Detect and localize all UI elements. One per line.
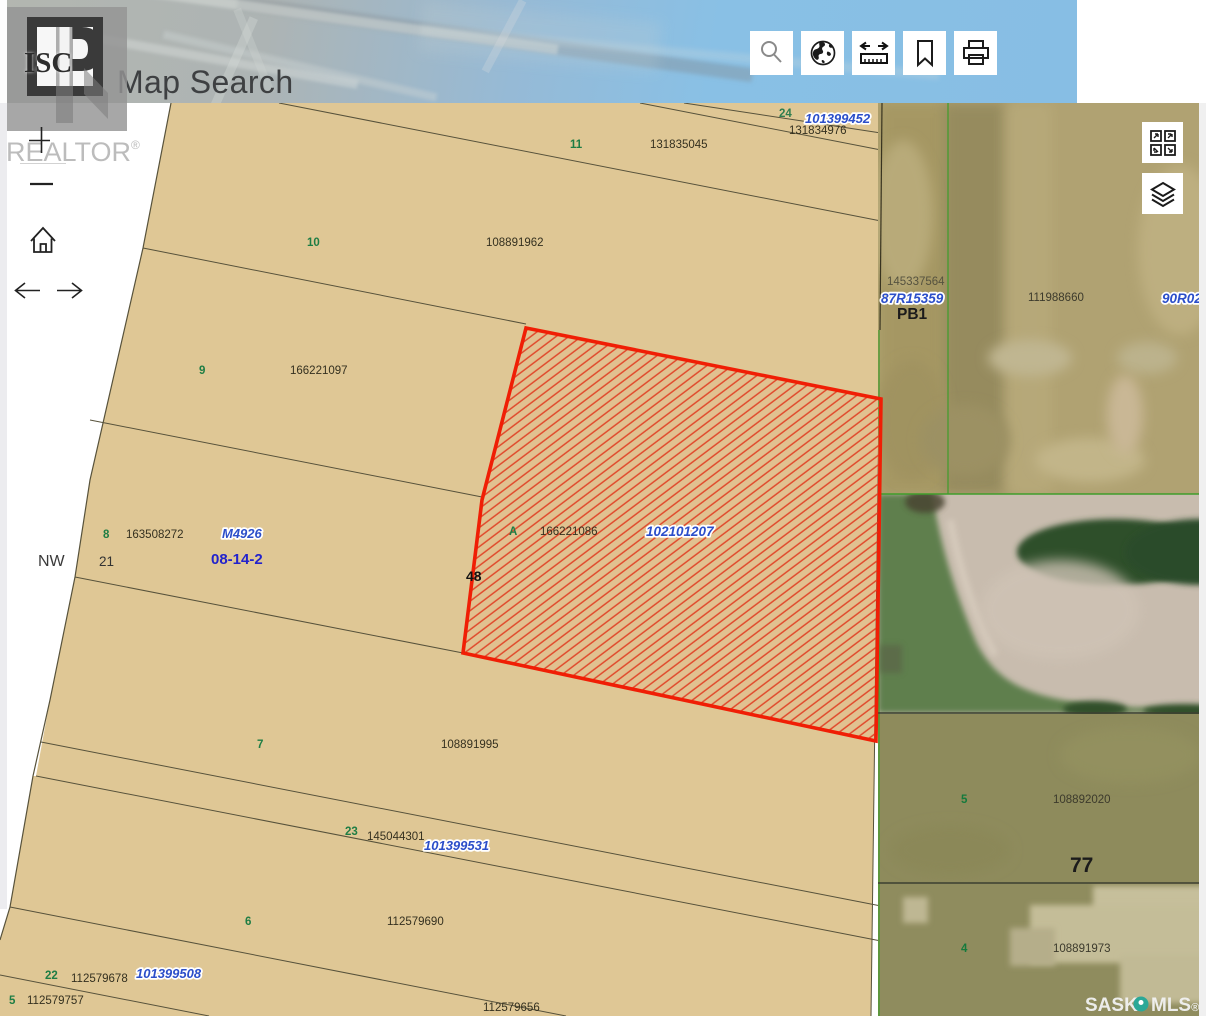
svg-text:101399452: 101399452 [805,111,871,126]
svg-text:166221086: 166221086 [540,526,598,538]
svg-text:145044301: 145044301 [367,831,425,843]
svg-text:112579678: 112579678 [71,973,128,985]
svg-text:24: 24 [779,108,792,120]
svg-text:8: 8 [103,529,110,541]
svg-text:21: 21 [99,554,114,569]
svg-text:4: 4 [961,943,968,955]
svg-text:101399508: 101399508 [136,966,202,981]
svg-text:108891995: 108891995 [441,739,499,751]
svg-text:9: 9 [199,365,205,377]
svg-text:111988660: 111988660 [1028,292,1084,304]
svg-text:131835045: 131835045 [650,139,708,151]
svg-text:5: 5 [961,794,968,806]
svg-text:SASK: SASK [1085,995,1138,1016]
svg-text:23: 23 [345,826,358,838]
svg-text:102101207: 102101207 [646,524,715,539]
svg-text:08-14-2: 08-14-2 [211,551,263,568]
svg-text:NW: NW [38,553,66,570]
svg-text:101399531: 101399531 [424,838,489,853]
svg-text:166221097: 166221097 [290,365,348,377]
svg-text:163508272: 163508272 [126,529,184,541]
svg-text:5: 5 [9,995,16,1007]
svg-text:112579757: 112579757 [27,995,84,1007]
svg-text:108891962: 108891962 [486,237,544,249]
svg-text:M4926: M4926 [222,526,263,541]
svg-text:108892020: 108892020 [1053,794,1111,806]
svg-text:145337564: 145337564 [887,276,945,288]
svg-text:A: A [509,526,517,538]
svg-text:11: 11 [570,139,583,151]
svg-text:PB1: PB1 [897,306,928,323]
svg-text:7: 7 [257,739,263,751]
svg-text:131834976: 131834976 [789,125,847,137]
svg-text:112579690: 112579690 [387,916,444,928]
svg-text:6: 6 [245,916,251,928]
svg-text:77: 77 [1070,854,1093,877]
svg-text:90R02: 90R02 [1162,291,1202,306]
svg-text:10: 10 [307,237,320,249]
svg-text:87R15359: 87R15359 [881,291,944,306]
svg-text:48: 48 [466,568,482,584]
svg-text:108891973: 108891973 [1053,943,1111,955]
svg-text:22: 22 [45,970,58,982]
svg-text:112579656: 112579656 [483,1002,540,1014]
